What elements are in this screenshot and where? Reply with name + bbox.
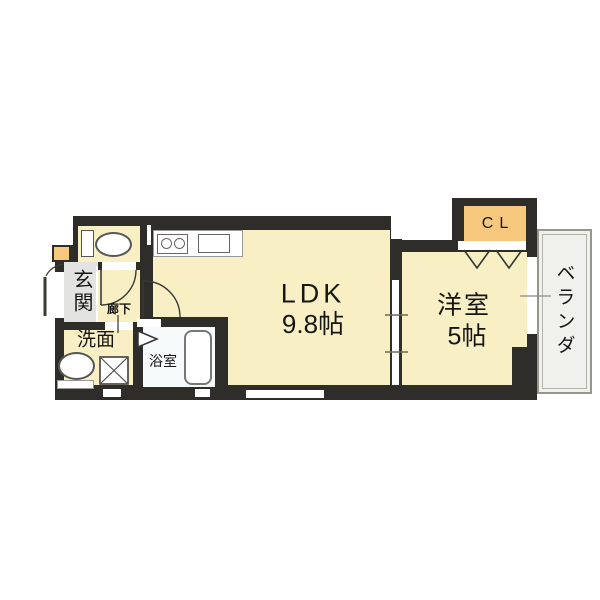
western-room-label: 洋室 <box>437 294 491 319</box>
entrance-door-icon <box>45 264 64 316</box>
bathroom-label: 浴室 <box>149 354 177 368</box>
closet-folding-door-icon <box>464 250 522 268</box>
ldk-label: LDK <box>281 281 346 308</box>
folding-door-icon <box>138 331 157 347</box>
hallway-label: 廊下 <box>107 303 131 315</box>
sliding-door-ticks <box>385 315 408 352</box>
western-room-size-label: 5帖 <box>448 325 487 350</box>
ldk-size-label: 9.8帖 <box>282 311 344 337</box>
veranda-label: ベランダ <box>555 263 574 359</box>
door-swing-icon <box>101 268 136 305</box>
floor-plan: LDK 9.8帖 洋室 5帖 CL ベランダ 玄関 廊下 洗面 浴室 <box>0 0 600 600</box>
door-swing-icon <box>143 280 180 317</box>
washroom-label: 洗面 <box>77 331 115 350</box>
closet-label: CL <box>476 216 514 232</box>
washing-machine-icon <box>100 357 128 384</box>
entrance-label: 玄関 <box>71 269 91 315</box>
